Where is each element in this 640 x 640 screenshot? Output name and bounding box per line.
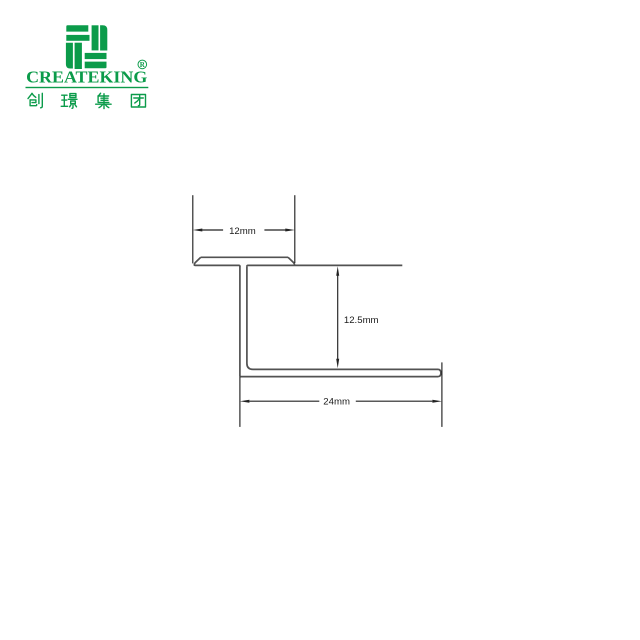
svg-text:CREATEKING: CREATEKING xyxy=(26,68,147,87)
svg-text:24mm: 24mm xyxy=(323,396,350,407)
svg-text:12mm: 12mm xyxy=(229,226,256,237)
svg-text:12.5mm: 12.5mm xyxy=(344,315,379,326)
